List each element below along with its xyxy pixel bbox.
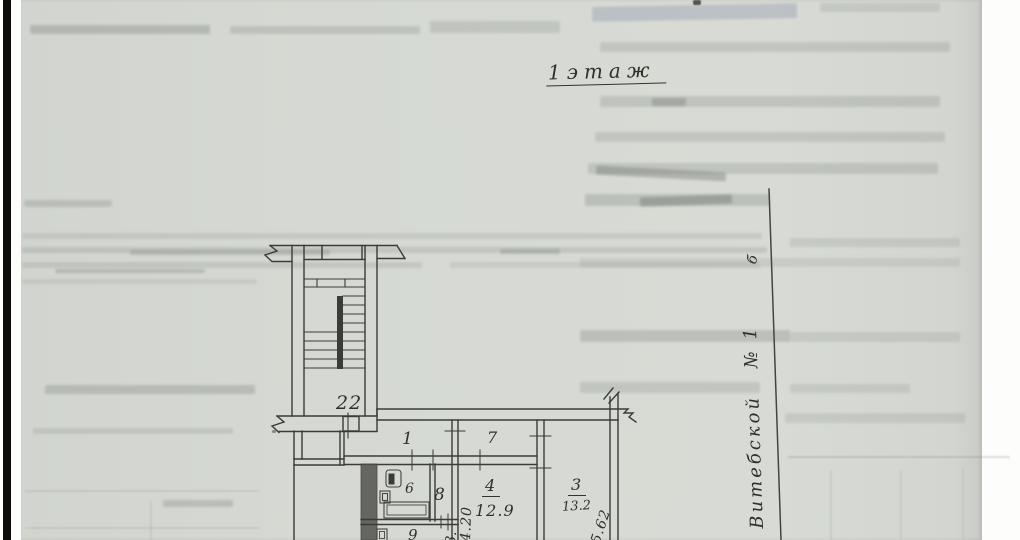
stair-number: 22 [336, 394, 362, 413]
room-label-3: 3 [568, 477, 586, 496]
sink-basin-icon [383, 494, 388, 501]
staircase-entrance-flange [265, 246, 405, 262]
room-label-1: 1 [402, 431, 413, 448]
entrance-doorway [343, 417, 359, 432]
floor-label: 1этаж [546, 59, 666, 86]
street-number: № 1 [740, 325, 762, 369]
floor-plan-drawing [0, 0, 1020, 540]
bathtub-icon [384, 502, 429, 518]
dimension-room4-depth: 4.20 [459, 506, 474, 540]
left-exterior-wall [294, 431, 344, 540]
room-number-underlined: 3 [568, 477, 586, 496]
toilet-tank-icon [389, 474, 395, 485]
dimension-partial-bottom: 3. [444, 531, 459, 540]
wall-pier [361, 464, 377, 540]
stair-stringer [337, 296, 343, 369]
sink-icon [380, 491, 390, 503]
room-label-4: 4 [482, 478, 500, 497]
bathroom-fixtures [377, 470, 429, 540]
room-label-7: 7 [487, 430, 497, 446]
staircase-shaft-walls [292, 246, 377, 417]
staircase-bottom-band [272, 413, 377, 438]
bathtub-inner-icon [387, 505, 426, 515]
room-label-8: 8 [434, 487, 445, 504]
scanned-floor-plan-page: 1этаж 22 1 7 6 8 4 12.9 3 13.2 9 4.20 5.… [0, 0, 1020, 540]
room-area-4: 12.9 [475, 503, 515, 519]
room-number-underlined: 4 [482, 478, 500, 497]
staircase-steps [304, 279, 365, 369]
room-area-3: 13.2 [562, 499, 592, 513]
room-label-6: 6 [405, 482, 414, 496]
street-boundary-line [769, 189, 781, 540]
room-label-9-partial: 9 [408, 528, 418, 540]
stove-inner-icon [380, 532, 385, 539]
